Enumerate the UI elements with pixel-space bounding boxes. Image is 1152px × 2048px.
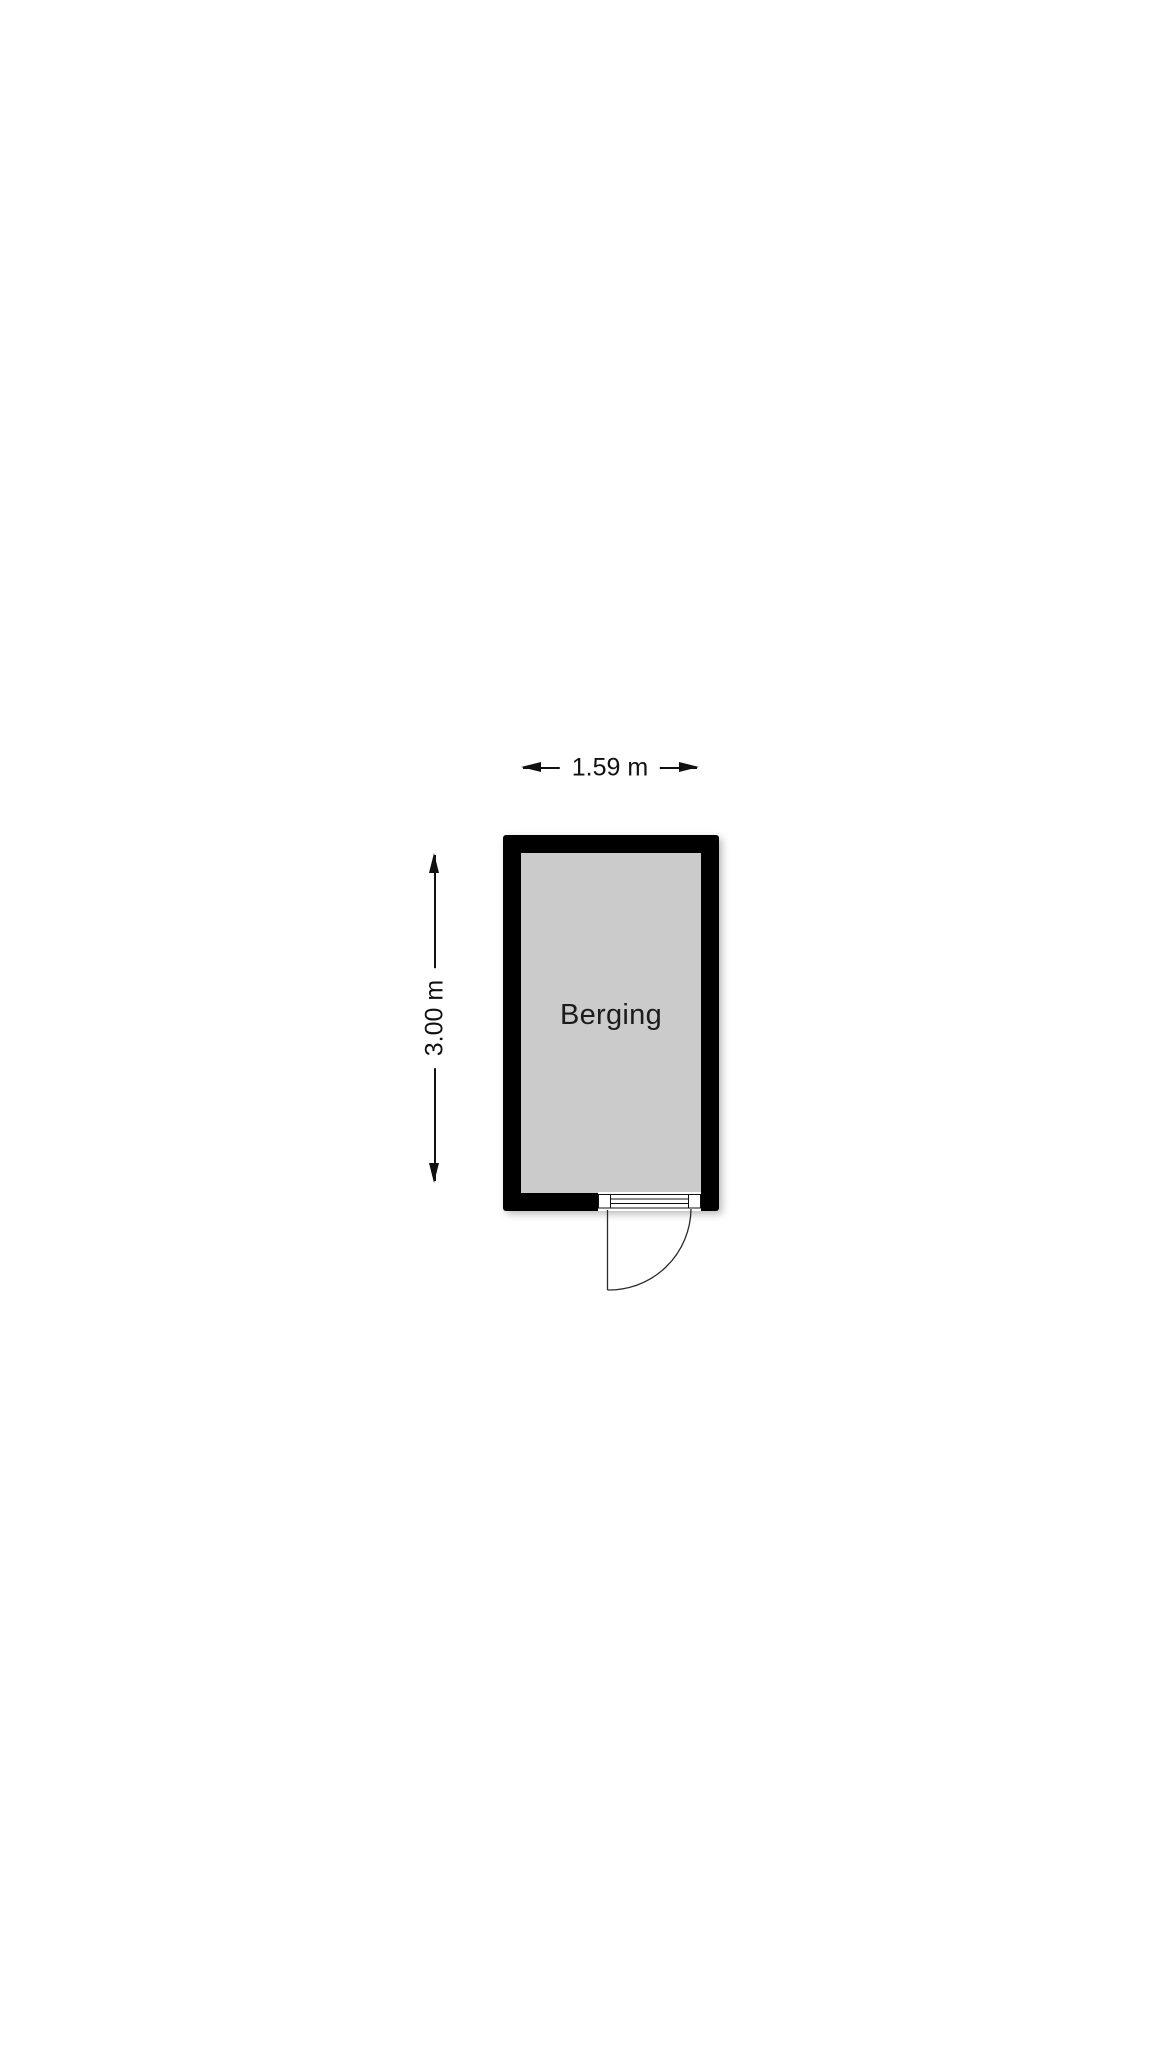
width-dimension: 1.59 m [521,760,699,776]
door [598,1192,704,1314]
room-label: Berging [560,999,662,1032]
arrow-right-icon [679,762,699,772]
arrow-up-icon [429,853,439,873]
floorplan-canvas: 1.59 m 3.00 m Berging [0,0,1152,2048]
arrow-down-icon [429,1163,439,1183]
height-dimension-label: 3.00 m [419,968,451,1068]
room-berging: Berging [503,835,719,1211]
height-dimension: 3.00 m [427,853,443,1183]
room-floor: Berging [521,853,701,1193]
door-threshold [599,1195,701,1209]
door-swing-arc [608,1209,692,1290]
arrow-left-icon [521,762,541,772]
width-dimension-label: 1.59 m [560,752,660,784]
